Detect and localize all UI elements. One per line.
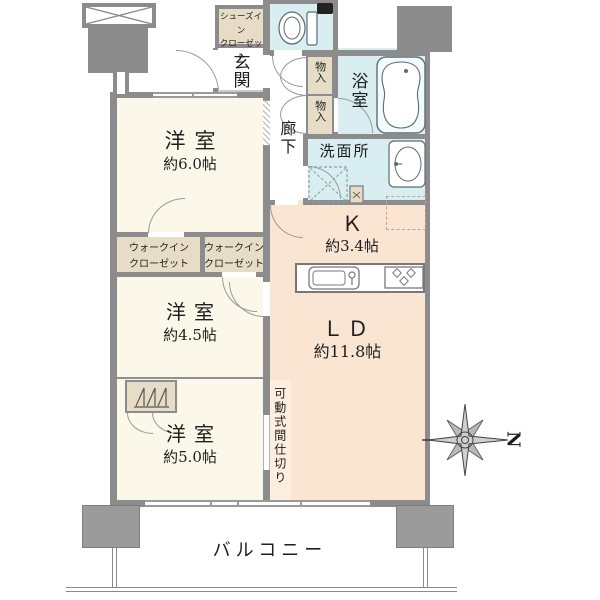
balcony-label: バルコニー — [180, 541, 360, 562]
washbasin-icon — [388, 140, 426, 188]
wall-bedroom1-bottom — [110, 232, 270, 237]
bedroom1-name: 洋室 — [110, 129, 270, 153]
window-mullion — [237, 500, 239, 507]
toilet-icon — [276, 8, 322, 50]
storage-bifold-arc — [280, 76, 307, 96]
bathroom-label: 浴室 — [347, 72, 367, 110]
washing-machine-area-icon — [308, 166, 348, 203]
walk-in-closet2-label: ウォークイン クローゼット — [204, 241, 264, 272]
storage-bifold-arc — [280, 95, 307, 115]
stove-icon — [384, 266, 424, 289]
balcony-post-right — [423, 548, 428, 587]
entry-step-line — [218, 90, 263, 92]
living-dining-size: 約11.8帖 — [270, 343, 425, 361]
elevator-icon — [82, 3, 156, 28]
movable-partition-label: 可動式間仕切り — [272, 387, 286, 485]
kitchen-name: Ｋ — [292, 212, 412, 236]
floor-plan: N 洋室 約6.0帖 ウォークイン クローゼット ウォークイン クローゼット 洋… — [0, 0, 600, 600]
storage1-label: 物入 — [313, 61, 326, 83]
bedroom3-size: 約5.0帖 — [110, 449, 270, 466]
kitchen-size: 約3.4帖 — [292, 238, 412, 255]
bedroom2-size: 約4.5帖 — [110, 327, 270, 344]
compass-north-label: N — [502, 431, 523, 447]
hanger-icon — [133, 384, 171, 410]
walk-in-closet1-label: ウォークイン クローゼット — [118, 241, 200, 272]
kitchen-sink-icon — [308, 266, 360, 290]
bedroom1-size: 約6.0帖 — [110, 156, 270, 173]
balcony-pillar-left — [82, 505, 140, 548]
bedroom3-name: 洋室 — [110, 423, 270, 446]
balcony-pillar-right — [396, 505, 454, 548]
elevator-corridor-stem — [113, 72, 129, 94]
window-mullion — [300, 500, 302, 507]
bathtub-icon — [376, 56, 426, 134]
hallway-label: 廊下 — [277, 120, 295, 156]
living-dining-name: ＬＤ — [270, 317, 425, 341]
wall-toilet-right — [333, 0, 338, 51]
balcony-post-left — [112, 548, 117, 587]
wall-bedroom2-bedroom3-thin — [117, 377, 263, 379]
utility-box-icon — [349, 185, 364, 204]
window-balcony-band — [145, 500, 370, 507]
window-mullion — [210, 500, 212, 507]
storage-divider — [306, 94, 334, 96]
storage2-label: 物入 — [313, 100, 326, 122]
bedroom2-name: 洋室 — [110, 301, 270, 324]
elevator-core-block — [88, 28, 148, 73]
exterior-block-top-right — [397, 6, 452, 52]
washroom-label: 洗面所 — [306, 143, 384, 160]
balcony-railing — [66, 587, 457, 592]
shoes-closet-label: シューズイン クローゼット — [217, 11, 265, 65]
